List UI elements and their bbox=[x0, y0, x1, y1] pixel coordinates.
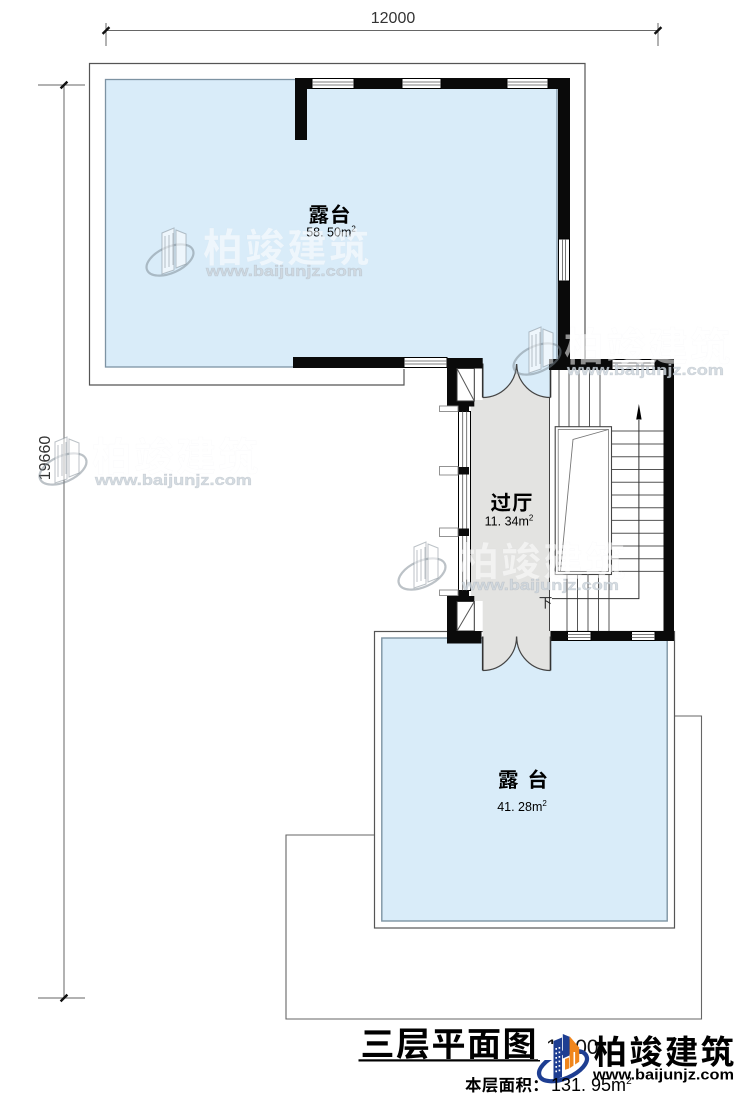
svg-text:www.baijunjz.com: www.baijunjz.com bbox=[592, 1068, 734, 1084]
svg-text:11. 34m2: 11. 34m2 bbox=[485, 514, 534, 529]
svg-text:41. 28m2: 41. 28m2 bbox=[497, 799, 547, 814]
svg-text:12000: 12000 bbox=[371, 10, 416, 27]
svg-text:www.baijunjz.com: www.baijunjz.com bbox=[566, 362, 724, 379]
svg-text:www.baijunjz.com: www.baijunjz.com bbox=[205, 263, 363, 280]
svg-text:www.baijunjz.com: www.baijunjz.com bbox=[461, 577, 619, 594]
svg-text:www.baijunjz.com: www.baijunjz.com bbox=[94, 472, 252, 489]
